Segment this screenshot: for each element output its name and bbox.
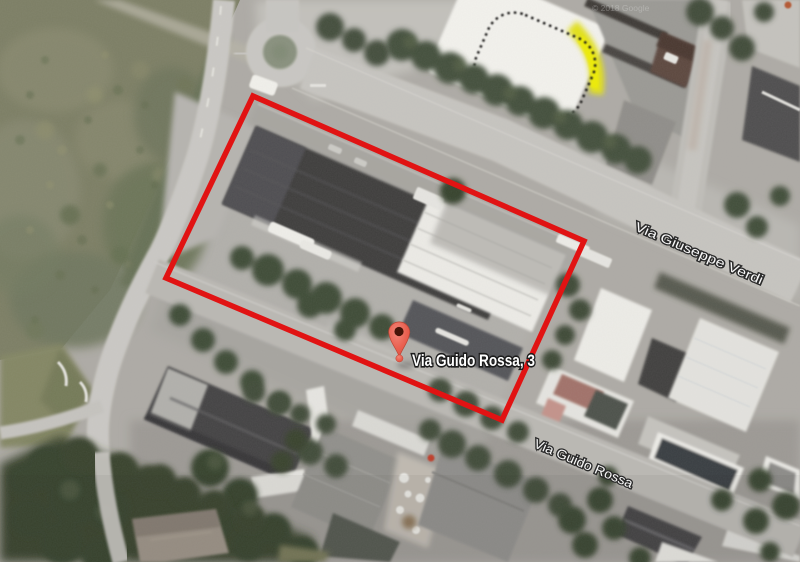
svg-text:Via Guido Rossa, 3: Via Guido Rossa, 3 xyxy=(412,351,535,370)
svg-text:© 2018 Google: © 2018 Google xyxy=(592,3,650,13)
